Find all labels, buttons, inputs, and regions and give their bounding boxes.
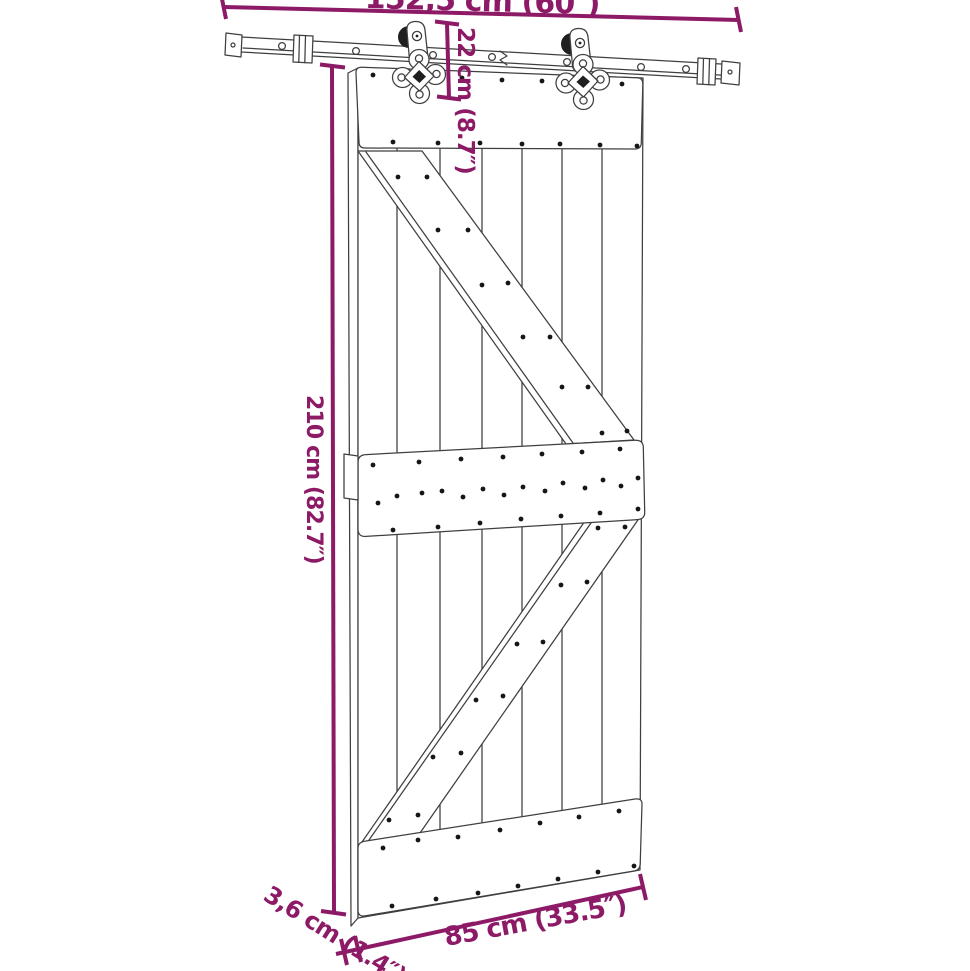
door-height-label: 210 cm (82.7″) (301, 395, 326, 564)
hardware-height-label: 22 cm (8.7″) (452, 27, 478, 174)
dim-door-height: 210 cm (82.7″) (301, 65, 346, 915)
door (344, 67, 645, 926)
middle-board (358, 440, 645, 536)
rail-end-cap-left (225, 33, 242, 57)
rail-collar-right (697, 58, 716, 85)
barn-door-dimension-diagram: 152,5 cm (60″) 22 cm (8.7″) 210 cm (82.7… (0, 0, 970, 971)
diagram-canvas: 152,5 cm (60″) 22 cm (8.7″) 210 cm (82.7… (0, 0, 970, 971)
middle-board-end (344, 454, 358, 500)
rail-end-cap-right (721, 61, 740, 85)
rail-collar-left (293, 35, 313, 63)
rail-length-label: 152,5 cm (60″) (364, 0, 600, 22)
dim-rail-length: 152,5 cm (60″) (221, 0, 741, 32)
